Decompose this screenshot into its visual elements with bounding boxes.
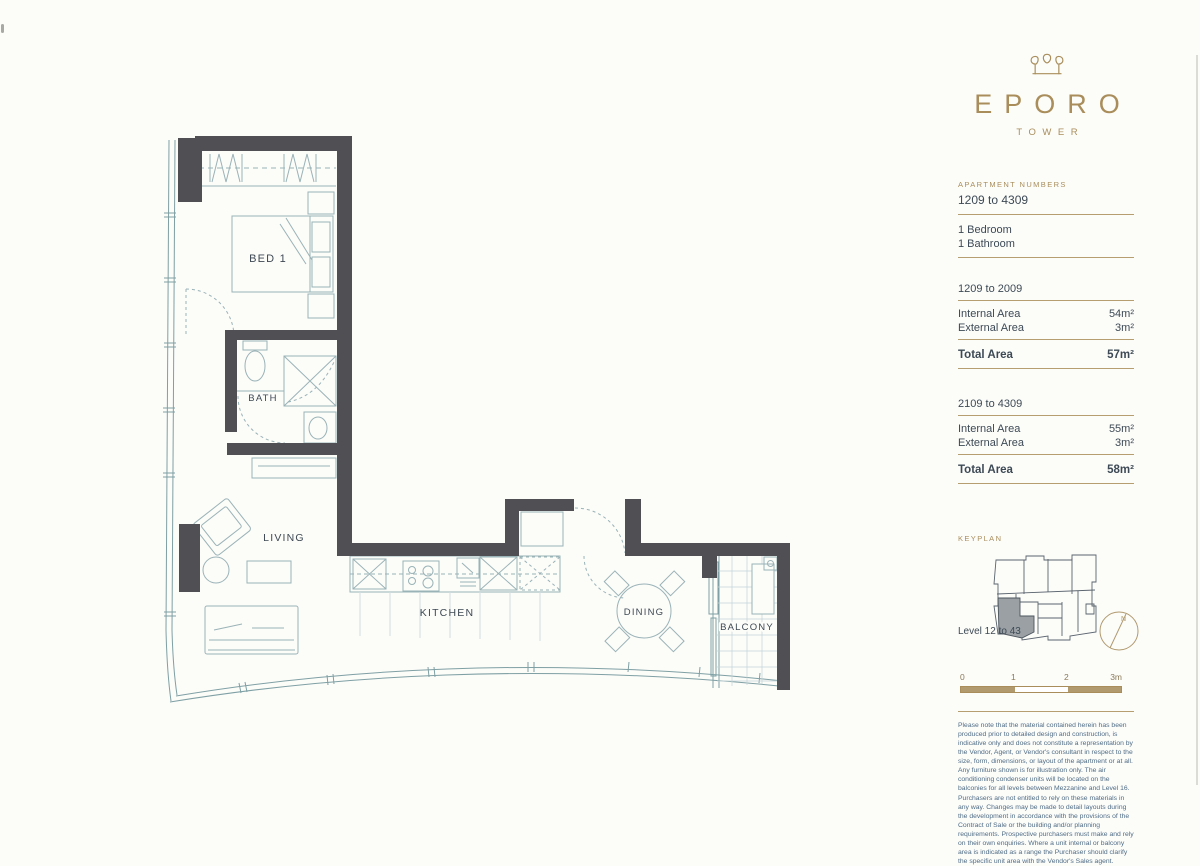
sofa-icon xyxy=(205,606,298,654)
room-label-bath: BATH xyxy=(248,393,277,404)
scale-labels: 0 1 2 3m xyxy=(960,672,1122,683)
scale-segment xyxy=(1015,687,1068,692)
toilet-icon xyxy=(243,341,267,350)
scale-tick: 1 xyxy=(1011,672,1016,682)
scale-bar-segments xyxy=(960,686,1122,693)
range-label: 2109 to 4309 xyxy=(958,397,1022,411)
divider xyxy=(958,339,1134,340)
area-row-value: 54m² xyxy=(1109,307,1134,321)
bedroom-count: 1 Bedroom xyxy=(958,223,1134,237)
area-table-2-range: 2109 to 4309 xyxy=(958,397,1134,411)
page-edge-line xyxy=(1196,55,1198,785)
total-area-row: Total Area 57m² xyxy=(958,348,1134,362)
balcony-bench-icon xyxy=(752,564,774,614)
floor-plan-drawing: BED 1 BATH LIVING KITCHEN DINING BALCONY xyxy=(0,0,880,849)
area-row: External Area 3m² xyxy=(958,436,1134,450)
room-label-living: LIVING xyxy=(263,532,305,544)
disclaimer-text: Please note that the material contained … xyxy=(958,721,1134,866)
bedroom-count-label: 1 Bedroom xyxy=(958,223,1012,237)
door-swing-icon xyxy=(584,556,626,598)
scale-segment xyxy=(961,687,1015,692)
room-label-dining: DINING xyxy=(624,607,664,618)
divider xyxy=(958,257,1134,258)
cooktop-icon xyxy=(403,561,439,591)
coffee-table-icon xyxy=(247,561,291,583)
north-label: N xyxy=(1121,616,1126,623)
total-area-label: Total Area xyxy=(958,463,1013,477)
room-label-kitchen: KITCHEN xyxy=(420,607,475,619)
side-table-icon xyxy=(203,557,229,583)
area-row: Internal Area 54m² xyxy=(958,307,1134,321)
keyplan-heading: KEYPLAN xyxy=(958,534,1134,543)
area-row-label: Internal Area xyxy=(958,422,1020,436)
area-row-label: External Area xyxy=(958,321,1024,335)
area-row-value: 3m² xyxy=(1115,436,1134,450)
furniture-layer xyxy=(186,154,777,686)
bathroom-count: 1 Bathroom xyxy=(958,237,1134,251)
apartment-numbers-value: 1209 to 4309 xyxy=(958,193,1134,207)
armchair-icon xyxy=(192,498,251,557)
area-row-label: External Area xyxy=(958,436,1024,450)
total-area-label: Total Area xyxy=(958,348,1013,362)
divider xyxy=(958,711,1134,712)
total-area-row: Total Area 58m² xyxy=(958,463,1134,477)
north-arrow-icon: N xyxy=(1096,603,1142,655)
divider xyxy=(958,214,1134,215)
divider xyxy=(958,483,1134,484)
area-row-value: 3m² xyxy=(1115,321,1134,335)
scale-segment xyxy=(1068,687,1121,692)
area-table-1-range: 1209 to 2009 xyxy=(958,282,1134,296)
room-label-bed1: BED 1 xyxy=(249,253,287,265)
area-row-value: 55m² xyxy=(1109,422,1134,436)
divider xyxy=(958,454,1134,455)
appliance-icon xyxy=(457,558,479,586)
logo-subtitle: TOWER xyxy=(958,127,1143,138)
area-row-label: Internal Area xyxy=(958,307,1020,321)
area-row: External Area 3m² xyxy=(958,321,1134,335)
total-area-value: 58m² xyxy=(1107,463,1134,477)
scale-tick: 2 xyxy=(1064,672,1069,682)
scale-bar: 0 1 2 3m xyxy=(960,672,1122,693)
scale-tick: 3m xyxy=(1110,672,1122,682)
crown-icon xyxy=(1025,50,1069,78)
divider xyxy=(958,415,1134,416)
scale-tick: 0 xyxy=(960,672,965,682)
room-label-balcony: BALCONY xyxy=(720,622,774,633)
divider xyxy=(958,368,1134,369)
entry-cupboard-icon xyxy=(521,512,563,546)
brand-logo: EPORO TOWER xyxy=(958,50,1136,138)
entry-door-swing-icon xyxy=(575,508,625,553)
walls-layer xyxy=(178,136,790,690)
area-row: Internal Area 55m² xyxy=(958,422,1134,436)
glazing-lines xyxy=(163,140,789,702)
logo-title: EPORO xyxy=(958,89,1148,120)
apartment-numbers-heading: APARTMENT NUMBERS xyxy=(958,180,1134,189)
divider xyxy=(958,300,1134,301)
total-area-value: 57m² xyxy=(1107,348,1134,362)
bathroom-count-label: 1 Bathroom xyxy=(958,237,1015,251)
door-swing-icon xyxy=(186,289,234,337)
range-label: 1209 to 2009 xyxy=(958,282,1022,296)
